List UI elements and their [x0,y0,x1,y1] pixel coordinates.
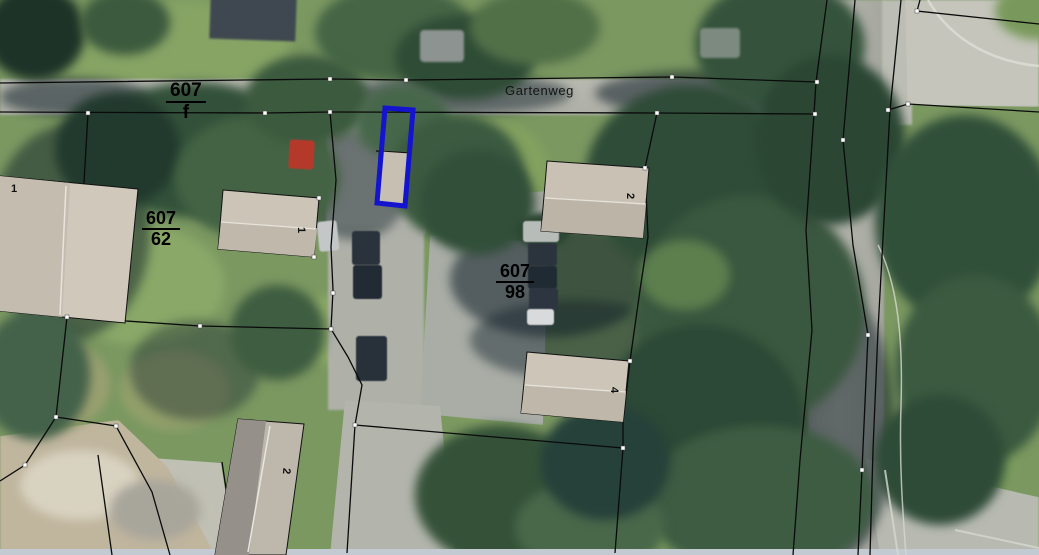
parcel-numerator: 607 [142,209,180,230]
parcel-numerator: 607 [496,262,534,283]
aerial-map[interactable]: 607 f 607 62 607 98 Gartenweg 1 1 2 4 2 [0,0,1039,555]
parcel-label-607-62: 607 62 [142,209,180,249]
street-name-label: Gartenweg [505,83,574,98]
parcel-label-607-98: 607 98 [496,262,534,302]
parcel-denominator: 62 [142,230,180,248]
parcel-label-607-f: 607 f [166,81,206,123]
curb-lines [878,0,1039,555]
buildings [0,151,649,555]
house-number-62: 1 [295,227,307,233]
house-number-top: 2 [624,193,636,199]
parcel-denominator: 98 [496,283,534,301]
parcel-numerator: 607 [166,81,206,103]
house-number-left: 1 [11,183,17,195]
house-number-bottom: 2 [280,467,292,474]
house-number-4: 4 [608,387,620,393]
parcel-denominator: f [166,103,206,122]
